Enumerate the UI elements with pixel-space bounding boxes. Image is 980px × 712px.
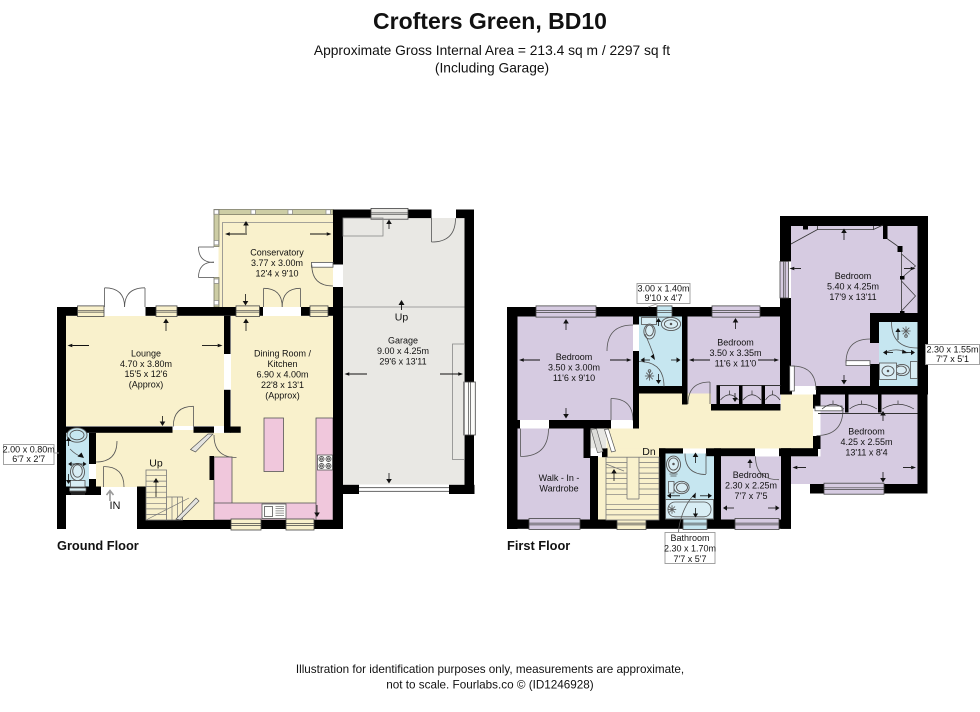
svg-text:17'9 x 13'11: 17'9 x 13'11 (829, 292, 876, 302)
svg-text:Bathroom: Bathroom (670, 533, 709, 543)
svg-text:3.50 x 3.00m: 3.50 x 3.00m (548, 363, 600, 373)
svg-text:Up: Up (395, 312, 409, 324)
svg-text:Conservatory: Conservatory (250, 248, 304, 258)
svg-text:not to scale. Fourlabs.co © (I: not to scale. Fourlabs.co © (ID1246928) (386, 679, 594, 692)
svg-text:(Approx): (Approx) (129, 380, 164, 390)
svg-text:4.70 x 3.80m: 4.70 x 3.80m (120, 359, 172, 369)
svg-text:Illustration for identificatio: Illustration for identification purposes… (296, 663, 684, 676)
svg-text:Walk - In -: Walk - In - (539, 473, 580, 483)
svg-text:Up: Up (149, 458, 163, 470)
svg-text:Ground Floor: Ground Floor (57, 538, 139, 553)
svg-text:(Including Garage): (Including Garage) (435, 61, 549, 76)
svg-text:Bedroom: Bedroom (733, 470, 770, 480)
svg-text:15'5 x 12'6: 15'5 x 12'6 (125, 369, 168, 379)
svg-text:13'11 x 8'4: 13'11 x 8'4 (845, 448, 887, 458)
svg-text:29'6 x 13'11: 29'6 x 13'11 (379, 357, 426, 367)
svg-text:Bedroom: Bedroom (556, 352, 593, 362)
svg-text:Lounge: Lounge (131, 349, 161, 359)
svg-text:Approximate Gross Internal Are: Approximate Gross Internal Area = 213.4 … (314, 43, 670, 58)
svg-text:Bedroom: Bedroom (835, 271, 872, 281)
svg-text:5.40 x 4.25m: 5.40 x 4.25m (827, 282, 879, 292)
svg-text:3.50 x 3.35m: 3.50 x 3.35m (709, 348, 761, 358)
svg-text:2.30 x 2.25m: 2.30 x 2.25m (725, 481, 777, 491)
svg-text:Kitchen: Kitchen (267, 359, 297, 369)
svg-text:7'7 x 7'5: 7'7 x 7'5 (735, 491, 768, 501)
svg-text:7'7 x 5'7: 7'7 x 5'7 (674, 554, 707, 564)
svg-text:IN: IN (110, 500, 121, 512)
svg-text:Dining Room /: Dining Room / (254, 349, 312, 359)
svg-text:Bedroom: Bedroom (848, 427, 885, 437)
svg-text:Wardrobe: Wardrobe (539, 484, 578, 494)
svg-text:Dn: Dn (642, 446, 656, 458)
svg-text:9.00 x 4.25m: 9.00 x 4.25m (377, 346, 429, 356)
svg-text:2.30 x 1.55m: 2.30 x 1.55m (926, 345, 978, 355)
svg-text:6.90 x 4.00m: 6.90 x 4.00m (256, 370, 308, 380)
svg-text:2.00 x 0.80m: 2.00 x 0.80m (3, 445, 55, 455)
svg-text:Crofters Green, BD10: Crofters Green, BD10 (373, 8, 607, 34)
svg-text:2.30 x 1.70m: 2.30 x 1.70m (664, 544, 716, 554)
svg-text:11'6 x 9'10: 11'6 x 9'10 (553, 373, 595, 383)
svg-text:9'10 x 4'7: 9'10 x 4'7 (645, 293, 683, 303)
svg-text:First Floor: First Floor (507, 538, 570, 553)
svg-text:22'8 x 13'1: 22'8 x 13'1 (261, 380, 304, 390)
svg-text:4.25 x 2.55m: 4.25 x 2.55m (840, 437, 892, 447)
svg-text:12'4 x 9'10: 12'4 x 9'10 (256, 269, 299, 279)
svg-text:(Approx): (Approx) (265, 391, 300, 401)
svg-text:Garage: Garage (388, 336, 418, 346)
svg-text:3.77 x 3.00m: 3.77 x 3.00m (251, 258, 303, 268)
svg-text:11'6 x 11'0: 11'6 x 11'0 (715, 359, 757, 369)
svg-text:6'7 x 2'7: 6'7 x 2'7 (12, 454, 45, 464)
svg-text:7'7 x 5'1: 7'7 x 5'1 (936, 354, 969, 364)
svg-text:Bedroom: Bedroom (717, 338, 754, 348)
svg-text:3.00 x 1.40m: 3.00 x 1.40m (637, 284, 689, 294)
